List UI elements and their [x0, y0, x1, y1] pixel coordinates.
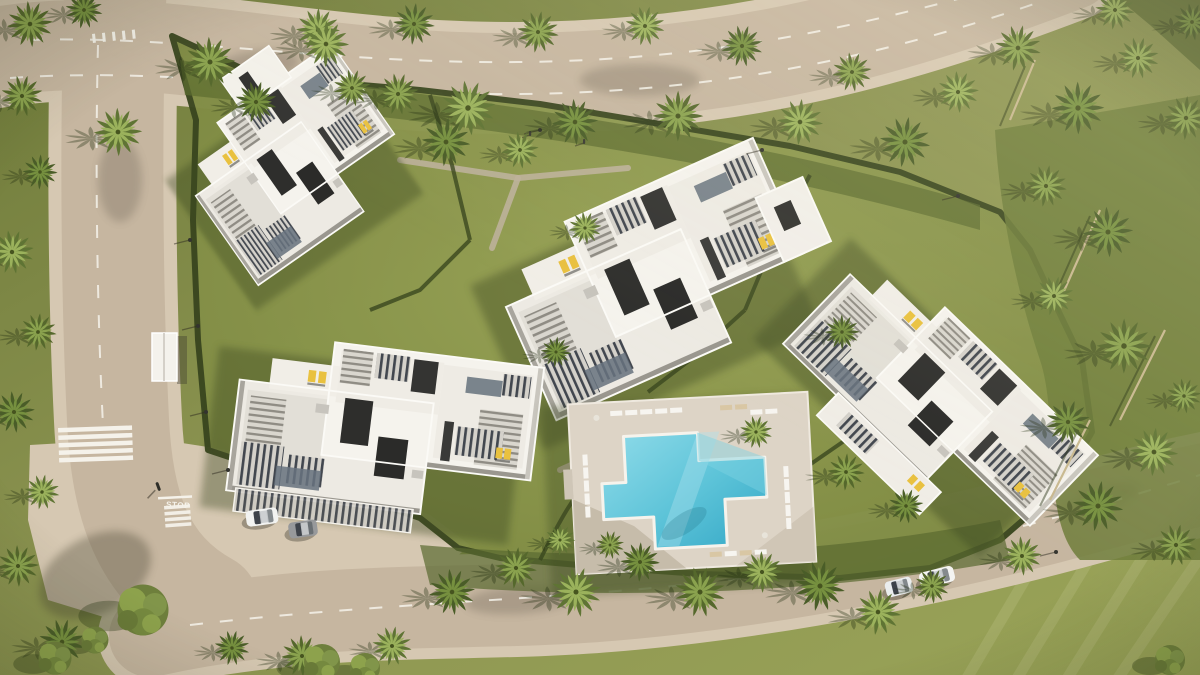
aerial-scene-svg: STOP	[0, 0, 1200, 675]
aerial-render: STOP	[0, 0, 1200, 675]
vignette-overlay	[0, 0, 1200, 675]
